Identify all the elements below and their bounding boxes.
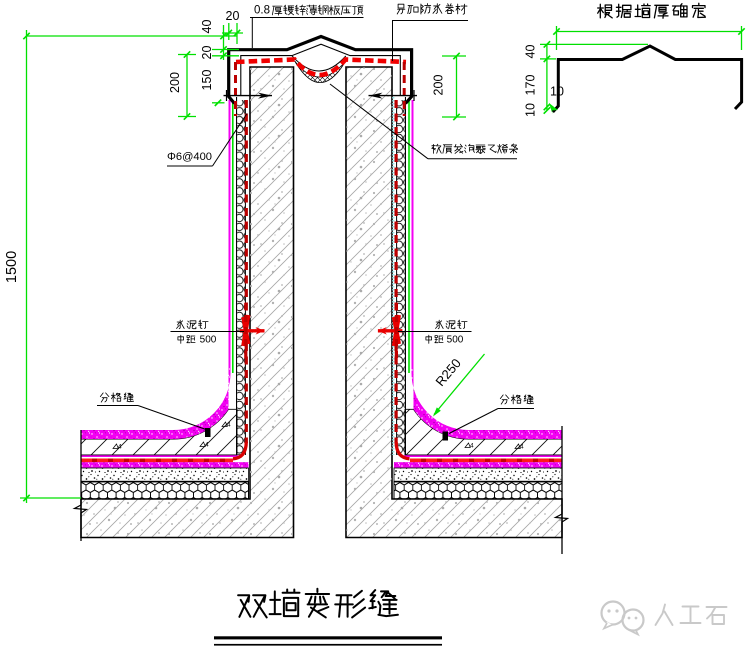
svg-text:40: 40 [523, 45, 537, 59]
svg-text:10: 10 [523, 103, 537, 117]
svg-text:4: 4 [470, 443, 474, 450]
svg-text:40: 40 [200, 20, 214, 34]
svg-text:150: 150 [200, 70, 214, 91]
svg-text:0.8: 0.8 [254, 5, 270, 17]
svg-text:4: 4 [205, 442, 209, 449]
svg-text:500: 500 [200, 335, 217, 346]
svg-text:170: 170 [523, 75, 537, 96]
svg-text:20: 20 [226, 9, 240, 23]
svg-text:4: 4 [227, 422, 231, 429]
svg-text:Φ6@400: Φ6@400 [167, 151, 212, 163]
svg-text:200: 200 [431, 75, 445, 96]
svg-text:200: 200 [168, 72, 182, 93]
svg-text:10: 10 [550, 84, 564, 98]
svg-text:500: 500 [447, 335, 464, 346]
svg-text:4: 4 [118, 444, 122, 451]
svg-text:20: 20 [200, 46, 214, 60]
svg-text:1500: 1500 [4, 251, 20, 283]
svg-text:4: 4 [520, 444, 524, 451]
